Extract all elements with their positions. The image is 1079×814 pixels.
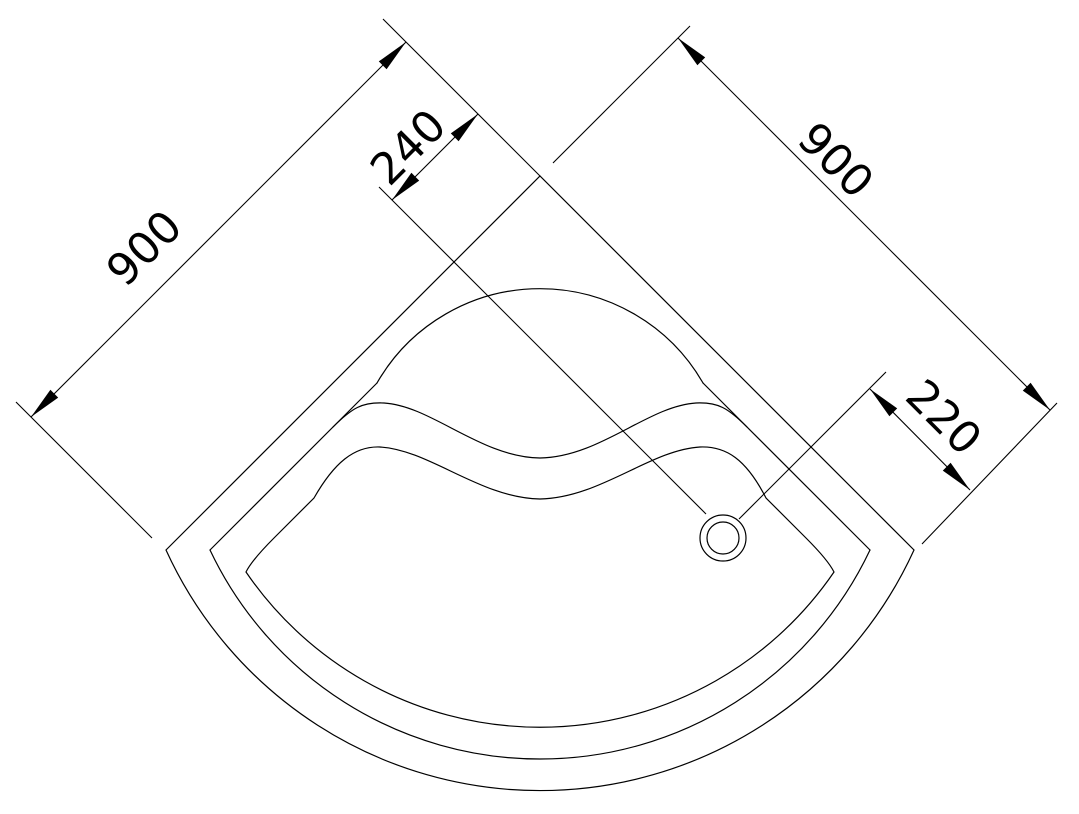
dimension-lines <box>16 19 1057 544</box>
dimension-left-900-arrowhead <box>31 390 58 417</box>
dimension-240 <box>379 114 706 514</box>
dimension-220-arrowhead <box>943 463 970 490</box>
shower-tray-plan-drawing: 900 240 900 220 <box>0 0 1079 814</box>
dimension-label-220: 220 <box>896 370 991 465</box>
dimension-right-900 <box>553 26 1057 544</box>
dimension-left-900-arrowhead <box>379 42 406 69</box>
technical-drawing-page: 900 240 900 220 <box>0 0 1079 814</box>
dimension-right-900-line <box>678 38 1050 410</box>
tray-rim-left-edge <box>210 383 377 550</box>
dimension-label-left-900: 900 <box>97 201 192 296</box>
dimension-left-900-line <box>31 42 406 417</box>
dimension-right-900-arrowhead <box>1023 383 1050 410</box>
dimension-label-right-900: 900 <box>788 113 883 208</box>
dimension-labels: 900 240 900 220 <box>97 100 991 465</box>
dimension-240-line <box>379 187 706 514</box>
tray-outlines <box>166 176 914 791</box>
dimension-right-900-line <box>553 26 690 163</box>
dimension-220-arrowhead <box>870 389 897 416</box>
dimension-left-900-line <box>16 402 152 538</box>
dimension-right-900-arrowhead <box>678 38 705 65</box>
bowl-inner-outline <box>246 447 834 727</box>
drain-waste <box>700 515 746 561</box>
dimension-label-240: 240 <box>361 100 456 195</box>
seat-back-arc <box>377 289 703 383</box>
tray-rim-right-edge <box>703 383 870 550</box>
drain-inner-circle <box>707 522 739 554</box>
dimension-220-line <box>739 372 886 519</box>
dimension-left-900 <box>16 19 540 538</box>
tray-outer-edge <box>166 176 914 791</box>
